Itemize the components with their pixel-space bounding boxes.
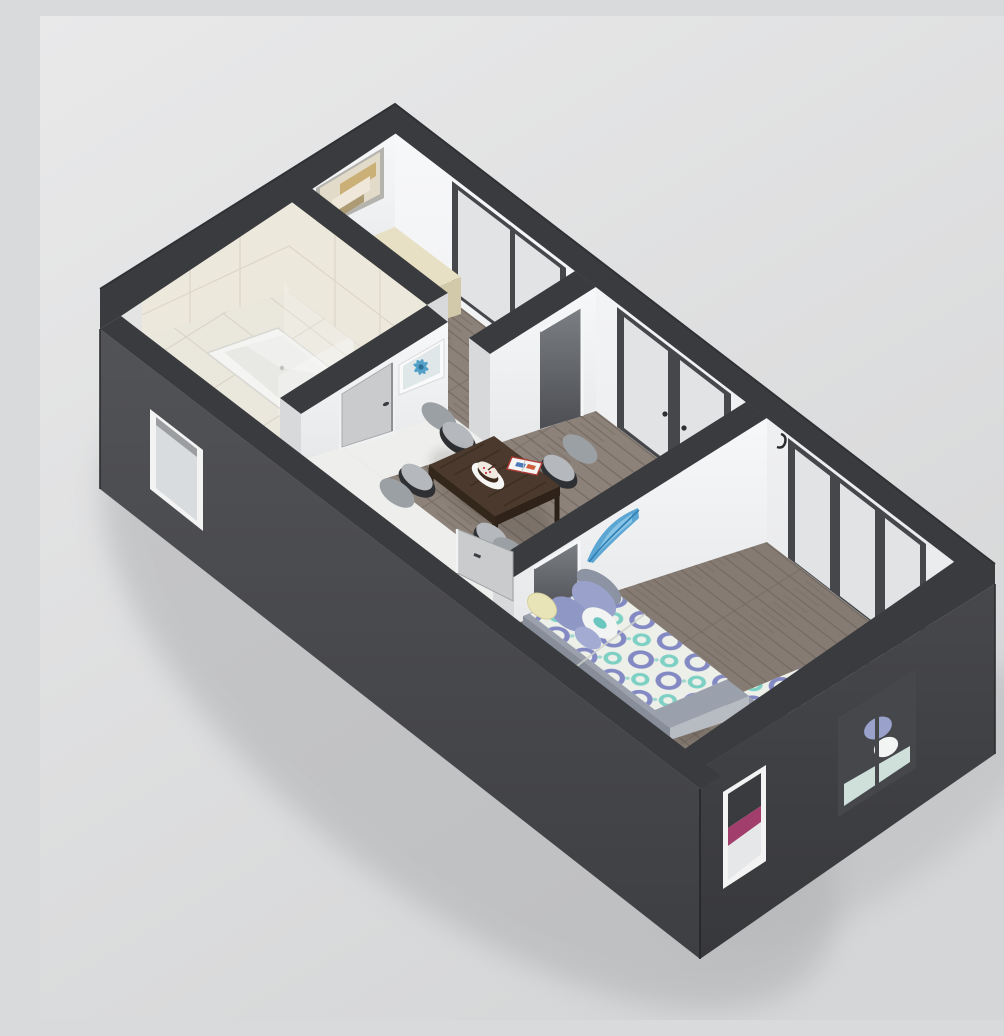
apartment-3d-floor-plan: Photorealistic isometric 3D cutaway floo… (40, 16, 1004, 1020)
daisy-center (418, 364, 423, 369)
shower-drain-icon (280, 366, 284, 370)
door-handle-icon (662, 411, 667, 416)
partition-end-face (469, 338, 490, 446)
door-handle-icon (681, 425, 686, 430)
